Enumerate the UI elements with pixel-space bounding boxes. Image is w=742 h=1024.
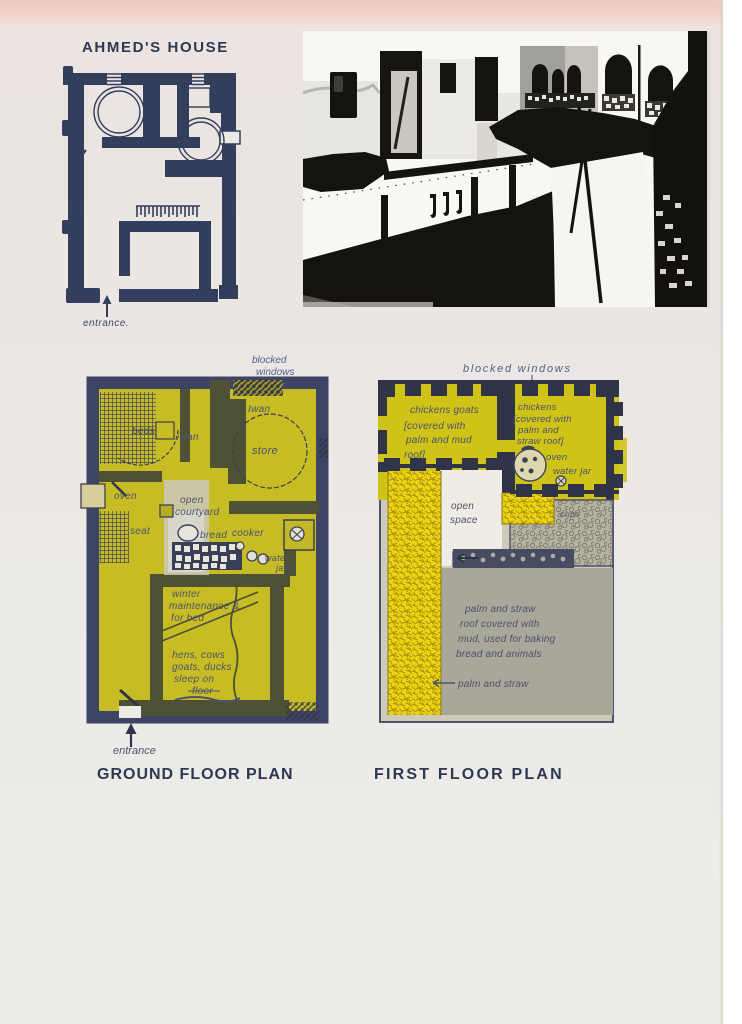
svg-text:chickens: chickens	[518, 402, 557, 413]
svg-text:seat: seat	[130, 526, 151, 537]
svg-text:winter: winter	[172, 589, 201, 600]
svg-text:space: space	[450, 515, 478, 526]
svg-text:blocked: blocked	[252, 355, 287, 366]
svg-text:for bed: for bed	[171, 613, 204, 624]
svg-text:oven: oven	[546, 452, 567, 463]
svg-text:hens, cows: hens, cows	[172, 650, 225, 661]
svg-text:straw roof]: straw roof]	[517, 436, 564, 447]
svg-text:beds: beds	[132, 426, 155, 437]
svg-text:cooker: cooker	[232, 528, 264, 539]
svg-text:mud, used for baking: mud, used for baking	[458, 634, 556, 645]
svg-text:bread and animals: bread and animals	[456, 649, 542, 660]
svg-text:blocked windows: blocked windows	[463, 363, 572, 375]
svg-text:palm and mud: palm and mud	[405, 435, 472, 446]
svg-text:entrance.: entrance.	[83, 318, 129, 329]
svg-text:jars: jars	[275, 563, 292, 573]
svg-text:entrance: entrance	[113, 745, 156, 757]
svg-text:windows: windows	[256, 367, 294, 378]
svg-text:iwan: iwan	[177, 432, 199, 443]
svg-text:open: open	[451, 501, 474, 512]
svg-text:palm and straw: palm and straw	[464, 604, 536, 615]
svg-text:water jar: water jar	[553, 466, 592, 477]
svg-text:goats, ducks: goats, ducks	[172, 662, 232, 673]
svg-text:palm and straw: palm and straw	[457, 679, 529, 690]
svg-text:oven: oven	[114, 491, 137, 502]
svg-text:sleep on: sleep on	[174, 674, 214, 685]
svg-text:[covered with: [covered with	[403, 421, 466, 432]
svg-text:[covered with: [covered with	[512, 414, 572, 425]
svg-text:chickens goats: chickens goats	[410, 405, 479, 416]
svg-text:palm and: palm and	[517, 425, 559, 436]
svg-text:bread: bread	[200, 530, 227, 541]
svg-text:cups: cups	[560, 509, 580, 519]
svg-text:store: store	[252, 445, 278, 457]
svg-text:Iwan: Iwan	[248, 404, 270, 415]
svg-text:roof]: roof]	[404, 450, 425, 461]
svg-text:roof covered with: roof covered with	[460, 619, 540, 630]
svg-text:courtyard: courtyard	[175, 507, 220, 518]
svg-text:water: water	[265, 553, 289, 563]
svg-text:open: open	[180, 495, 204, 506]
svg-text:maintenance &: maintenance &	[169, 601, 240, 612]
